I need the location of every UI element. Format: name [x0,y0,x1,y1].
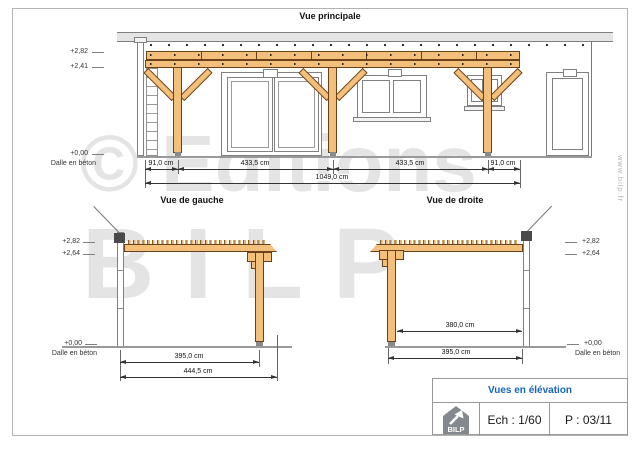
downspout [137,42,144,156]
dim-total-label: 1049,0 cm [314,174,351,181]
dim-left-inner-label: 395,0 cm [175,353,204,360]
ext-line [522,349,523,364]
level-282-left: +2,82 [40,238,80,245]
fascia-fixings [150,44,588,46]
post-3-anchor [485,152,491,156]
level-000-left: +0,00 [42,340,82,347]
purlin-screws [150,54,516,56]
wall-section-left-view [117,232,124,348]
level-264-left-tick [83,254,95,255]
ext-line [520,160,521,188]
level-000-right-tick [567,344,579,345]
post-1 [173,67,182,153]
bilp-logo-text: BILP [447,425,464,434]
rafter-left-view [124,244,277,252]
dim-left-outer-label: 444,5 cm [184,368,213,375]
light-fixture-window [388,69,402,77]
sliding-door-left-panel [227,77,273,152]
level-264-left: +2,64 [40,250,80,257]
level-241-main-tick [92,67,104,68]
beam-screws [150,63,516,65]
main-view-title: Vue principale [250,11,410,21]
ground-line-main [137,156,592,158]
roof-band [117,32,613,42]
ground-line-left-view [62,346,292,348]
level-241-main: +2,41 [48,63,88,70]
dim-right-outer [388,358,522,359]
post-2 [328,67,337,153]
ext-line [259,350,260,367]
left-view-title: Vue de gauche [132,195,252,205]
level-282-main-tick [92,52,104,53]
bilp-logo-icon: BILP [443,406,469,434]
light-fixture-door [263,69,278,78]
dim-seg2-label: 433,5 cm [241,160,270,167]
website-watermark: www.bilp.fr [616,155,625,265]
dim-seg4 [488,169,521,170]
window-large-pane-right [393,80,421,113]
light-fixture-entry [563,69,577,77]
post-anchor-left-view [256,342,263,346]
slab-label-main: Dalle en béton [34,160,96,167]
post-left-view [255,252,264,342]
purlins-section-left-view [128,240,267,244]
dim-left-outer [120,377,277,378]
level-282-main: +2,82 [48,48,88,55]
entry-door [546,72,589,156]
page-number-cell: P : 03/11 [550,403,627,436]
window-large-sill [353,117,431,122]
title-block-heading: Vues en élévation [433,379,627,403]
post-right-view [387,250,396,342]
post-2-anchor [330,152,336,156]
house-right-edge [591,42,592,156]
slab-label-right: Dalle en béton [575,350,620,357]
slab-label-left: Dalle en béton [35,350,97,357]
post-1-anchor [175,152,181,156]
gutter-section-left-view [114,233,125,243]
post-3 [483,67,492,153]
purlins-section-right-view [380,240,518,244]
window-large [357,75,427,118]
dim-total [145,183,520,184]
level-000-main: +0,00 [48,150,88,157]
level-282-right: +2,82 [582,238,600,245]
window-large-pane-left [362,80,390,113]
level-282-right-tick [565,242,577,243]
level-000-left-tick [85,344,97,345]
dim-left-inner [120,362,259,363]
wall-section-right-view [523,232,530,348]
title-block: Vues en élévation BILP Ech : 1/60 P : 03… [432,378,628,435]
dim-seg2 [178,169,333,170]
post-anchor-right-view [388,342,395,346]
scale-cell: Ech : 1/60 [480,403,550,436]
dim-seg3-label: 433,5 cm [396,160,425,167]
logo-cell: BILP [433,403,480,436]
dim-seg1 [145,169,178,170]
drawing-page: © Editions BILP Vue principale [0,0,640,452]
gutter-section-right-view [521,231,532,241]
dim-seg1-label: 91,0 cm [149,160,174,167]
sliding-door [221,72,322,156]
level-264-right-tick [565,254,577,255]
level-000-main-tick [92,154,104,155]
level-282-left-tick [83,242,95,243]
dim-right-inner-label: 380,0 cm [446,322,475,329]
right-view-title: Vue de droite [395,195,515,205]
level-000-right: +0,00 [584,340,602,347]
dim-seg4-label: 91,0 cm [491,160,516,167]
dim-seg3 [333,169,488,170]
sliding-door-right-panel [274,77,319,152]
dim-right-inner [397,331,522,332]
dim-right-outer-label: 395,0 cm [442,349,471,356]
entry-door-panel [552,78,583,150]
level-264-right: +2,64 [582,250,600,257]
ground-line-right-view [385,346,566,348]
